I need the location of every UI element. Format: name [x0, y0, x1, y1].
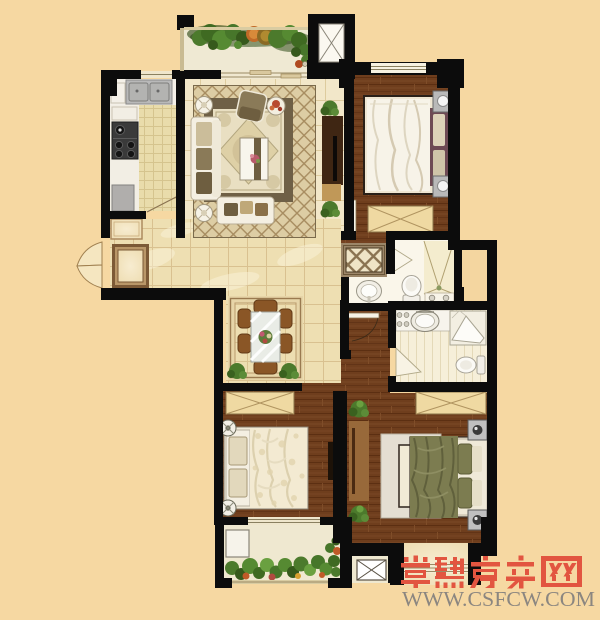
svg-text:WWW.CSFCW.COM: WWW.CSFCW.COM: [402, 587, 595, 611]
